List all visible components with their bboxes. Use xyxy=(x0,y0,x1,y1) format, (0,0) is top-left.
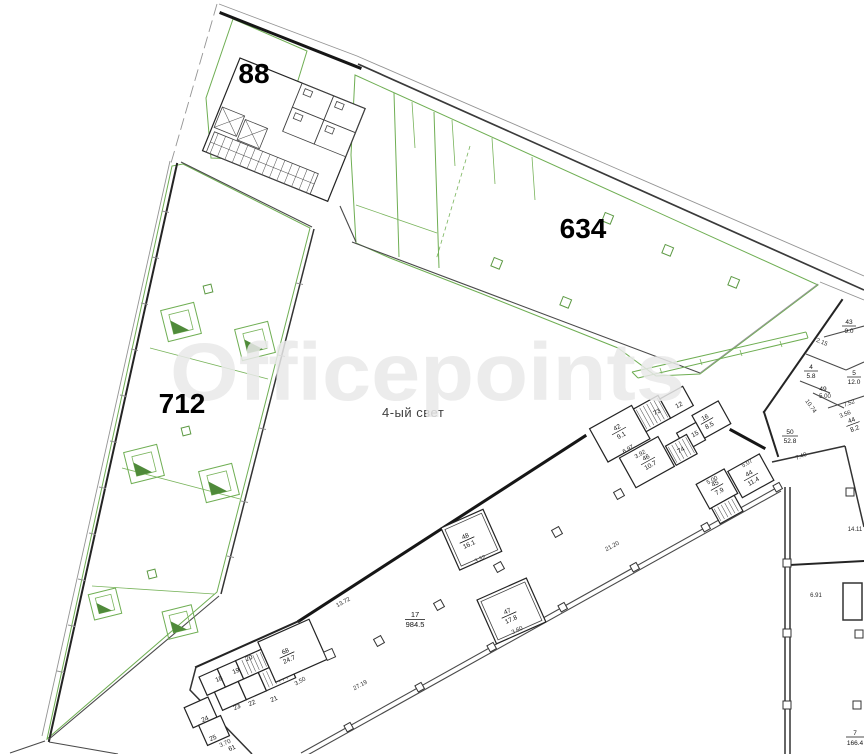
wing-end-rooms xyxy=(172,616,347,748)
area-size-label-634: 634 xyxy=(560,213,607,244)
columns-right-block xyxy=(783,488,863,709)
floor-plan-canvas: 17 984.5 68 24.7 42 9.1 46 10.7 16 8.5 4… xyxy=(0,0,864,754)
room-label-49: 49 xyxy=(819,386,827,393)
dim-label-1372: 13.72 xyxy=(335,596,352,609)
watermark: Officepoints xyxy=(170,327,685,418)
room-label-44b: 44 8.2 xyxy=(844,415,863,435)
room-label-4: 4 5.8 xyxy=(804,364,818,380)
room-label-22: 22 xyxy=(247,699,257,708)
room-label-7: 7 166.4 xyxy=(846,730,864,747)
dim-label-740: 7.40 xyxy=(795,452,809,462)
dim-label-1074: 10.74 xyxy=(803,399,817,415)
svg-text:4: 4 xyxy=(809,364,813,371)
svg-text:43: 43 xyxy=(845,319,853,326)
svg-text:9.0: 9.0 xyxy=(844,328,853,335)
columns-long-wall xyxy=(344,482,783,732)
svg-text:12.0: 12.0 xyxy=(848,379,861,386)
floor-plan-page: 17 984.5 68 24.7 42 9.1 46 10.7 16 8.5 4… xyxy=(0,0,864,754)
svg-text:17: 17 xyxy=(411,610,419,619)
svg-text:984.5: 984.5 xyxy=(406,620,425,629)
room-label-17: 17 984.5 xyxy=(405,610,425,629)
columns-634 xyxy=(491,212,740,308)
svg-text:166.4: 166.4 xyxy=(847,740,864,747)
room-label-5: 5 12.0 xyxy=(847,370,861,386)
dim-label-691: 6.91 xyxy=(810,593,822,599)
svg-text:7: 7 xyxy=(853,730,857,737)
room-label-21: 21 xyxy=(269,695,279,704)
svg-text:5.8: 5.8 xyxy=(806,373,815,380)
room-label-50: 50 52.8 xyxy=(782,429,798,445)
dim-label-2120: 21.20 xyxy=(604,540,621,553)
room-label-23: 23 xyxy=(232,703,242,712)
dim-label-752: 7.52 xyxy=(843,399,857,409)
dim-label-1411: 14.11 xyxy=(848,527,863,533)
svg-text:44: 44 xyxy=(847,416,857,425)
svg-text:5: 5 xyxy=(852,370,856,377)
svg-text:52.8: 52.8 xyxy=(784,438,797,445)
stair-block-44-45 xyxy=(696,450,780,524)
dim-label-2719: 27.19 xyxy=(352,679,369,692)
area-size-label-712: 712 xyxy=(159,388,206,419)
stair-elevator-core xyxy=(203,58,366,201)
room-label-43: 43 9.0 xyxy=(842,319,856,335)
area-size-label-88: 88 xyxy=(238,58,269,89)
dim-label-500b: 5.00 xyxy=(819,394,831,400)
svg-text:8.2: 8.2 xyxy=(849,424,860,434)
dim-label-215: 2.15 xyxy=(815,338,829,348)
svg-text:50: 50 xyxy=(786,429,794,436)
